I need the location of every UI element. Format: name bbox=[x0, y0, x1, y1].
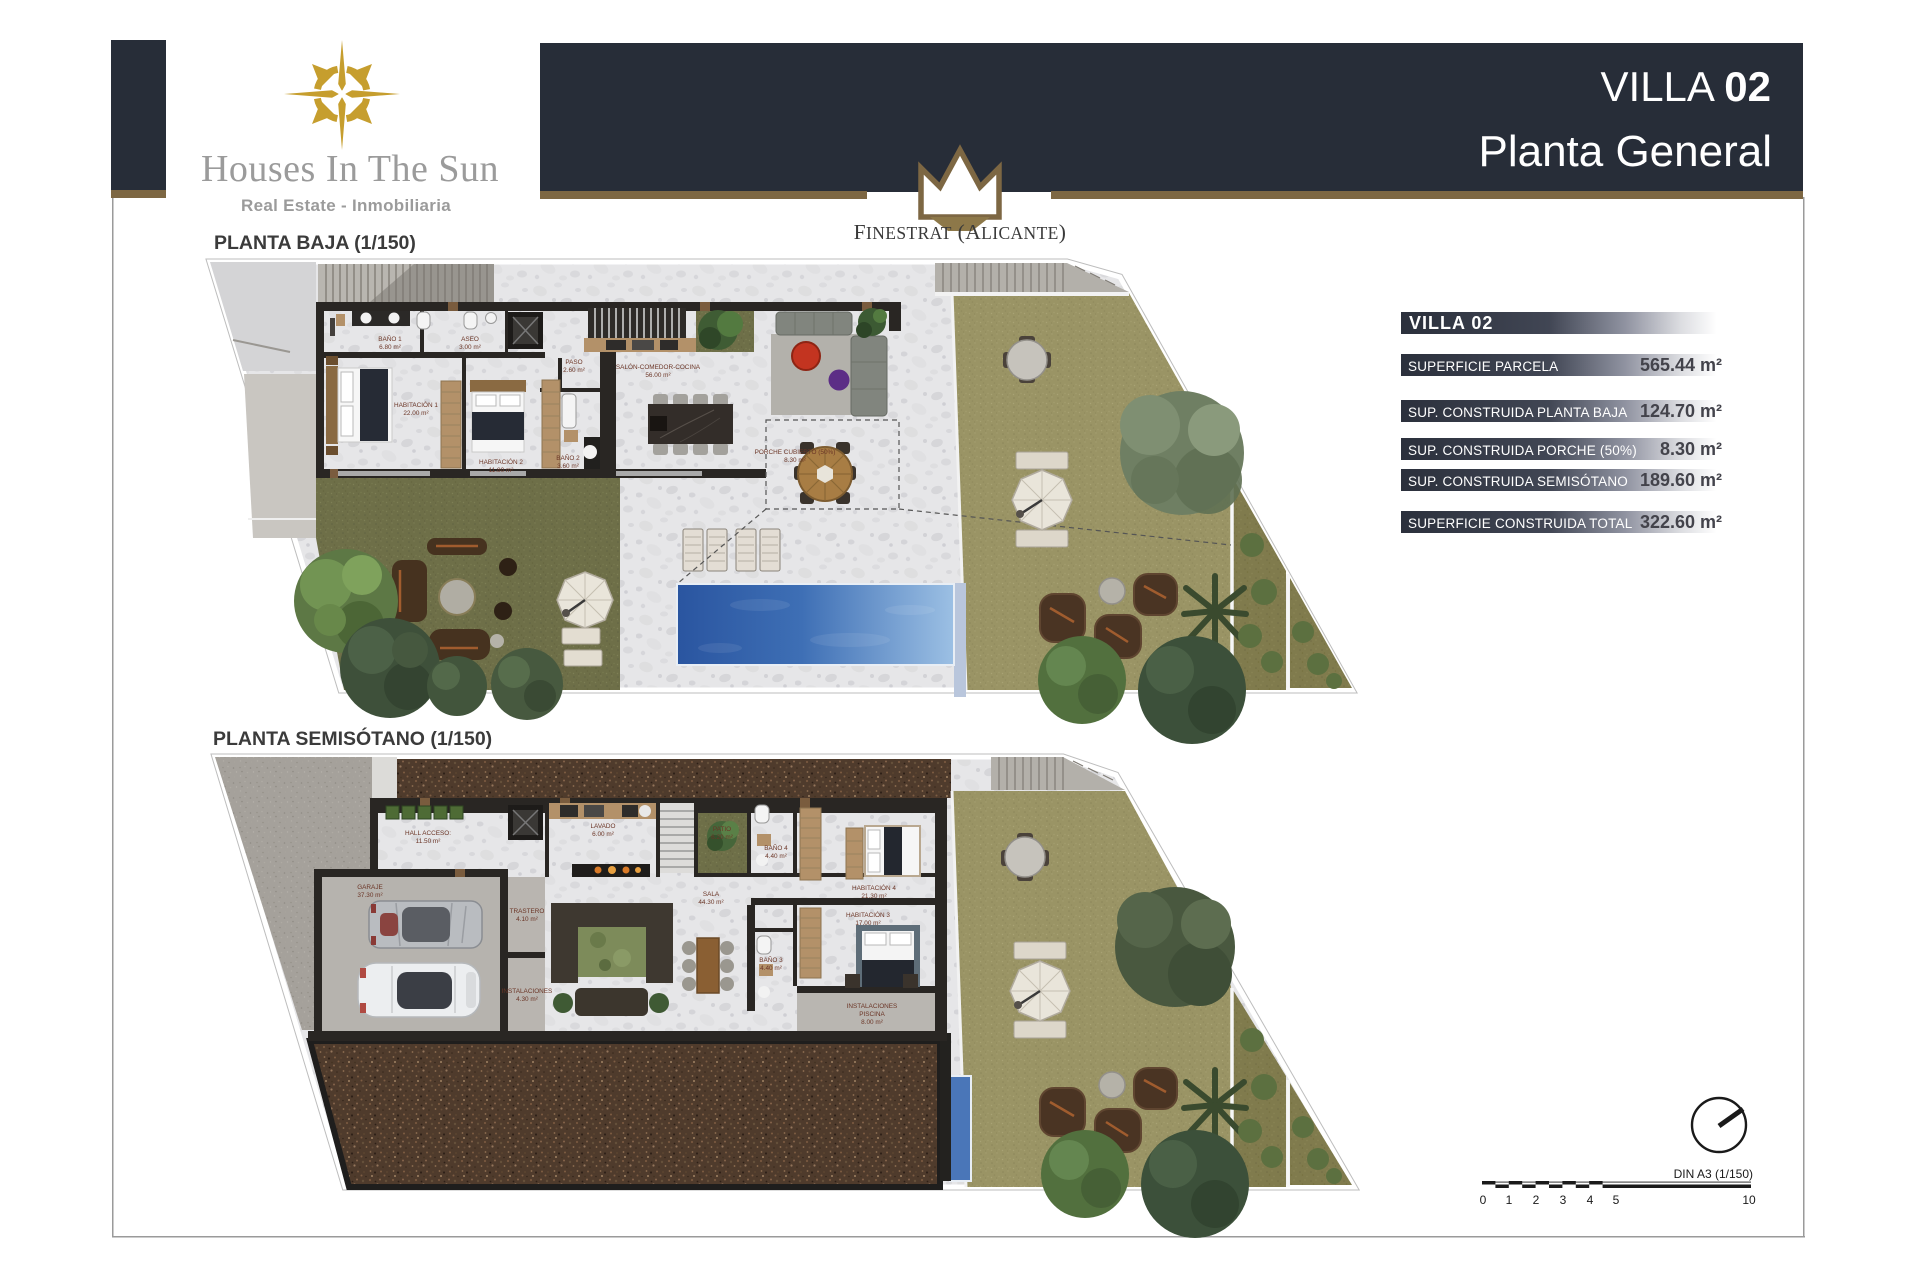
svg-text:322.60 m²: 322.60 m² bbox=[1640, 512, 1722, 532]
svg-text:189.60 m²: 189.60 m² bbox=[1640, 470, 1722, 490]
svg-text:Houses In The Sun: Houses In The Sun bbox=[201, 148, 499, 190]
svg-text:SUP. CONSTRUIDA PLANTA BAJA: SUP. CONSTRUIDA PLANTA BAJA bbox=[1408, 405, 1627, 420]
svg-text:11.50 m²: 11.50 m² bbox=[416, 838, 441, 845]
svg-text:56.00 m²: 56.00 m² bbox=[645, 372, 670, 379]
svg-text:5: 5 bbox=[1613, 1193, 1620, 1207]
svg-text:PLANTA BAJA (1/150): PLANTA BAJA (1/150) bbox=[214, 232, 416, 254]
svg-text:GARAJE: GARAJE bbox=[357, 884, 383, 891]
svg-text:BAÑO 4: BAÑO 4 bbox=[764, 843, 788, 852]
svg-text:LAVADO: LAVADO bbox=[591, 823, 616, 830]
svg-text:INSTALACIONES: INSTALACIONES bbox=[847, 1003, 898, 1010]
svg-text:PISCINA: PISCINA bbox=[859, 1011, 885, 1018]
svg-text:37.30 m²: 37.30 m² bbox=[357, 892, 382, 899]
svg-text:VILLA 02: VILLA 02 bbox=[1409, 313, 1493, 333]
svg-text:HABITACIÓN 4: HABITACIÓN 4 bbox=[852, 883, 896, 892]
svg-text:3: 3 bbox=[1560, 1193, 1567, 1207]
svg-text:8.30 m²: 8.30 m² bbox=[1660, 439, 1722, 459]
svg-text:0: 0 bbox=[1480, 1193, 1487, 1207]
svg-text:BAÑO 3: BAÑO 3 bbox=[759, 955, 783, 964]
svg-text:10: 10 bbox=[1742, 1193, 1756, 1207]
svg-text:4.40 m²: 4.40 m² bbox=[765, 853, 787, 860]
svg-text:4: 4 bbox=[1587, 1193, 1594, 1207]
svg-text:6.00 m²: 6.00 m² bbox=[592, 831, 614, 838]
svg-text:HABITACIÓN 1: HABITACIÓN 1 bbox=[394, 400, 438, 409]
svg-text:HALL ACCESO:: HALL ACCESO: bbox=[405, 830, 451, 837]
svg-text:8.00 m²: 8.00 m² bbox=[861, 1019, 883, 1026]
svg-text:DIN A3 (1/150): DIN A3 (1/150) bbox=[1674, 1167, 1753, 1181]
svg-text:22.00 m²: 22.00 m² bbox=[403, 410, 428, 417]
svg-text:Real Estate - Inmobiliaria: Real Estate - Inmobiliaria bbox=[241, 196, 451, 215]
svg-text:PATIO: PATIO bbox=[713, 826, 731, 833]
svg-text:PASO: PASO bbox=[565, 359, 582, 366]
svg-text:6.80 m²: 6.80 m² bbox=[379, 344, 401, 351]
svg-text:4.30 m²: 4.30 m² bbox=[516, 996, 538, 1003]
svg-text:44.30 m²: 44.30 m² bbox=[698, 899, 723, 906]
svg-text:SUPERFICIE CONSTRUIDA TOTAL: SUPERFICIE CONSTRUIDA TOTAL bbox=[1408, 516, 1633, 531]
svg-text:4.10 m²: 4.10 m² bbox=[516, 916, 538, 923]
svg-text:3.60 m²: 3.60 m² bbox=[557, 463, 579, 470]
svg-text:17.00 m²: 17.00 m² bbox=[855, 920, 880, 927]
svg-text:11.80 m²: 11.80 m² bbox=[489, 467, 514, 474]
svg-text:SALA: SALA bbox=[703, 891, 720, 898]
svg-text:PORCHE CUBIERTO (50%): PORCHE CUBIERTO (50%) bbox=[755, 449, 836, 456]
svg-text:4.40 m²: 4.40 m² bbox=[760, 965, 782, 972]
svg-text:VILLA 02: VILLA 02 bbox=[1601, 63, 1771, 110]
svg-text:6.20 m²: 6.20 m² bbox=[711, 834, 733, 841]
svg-text:SALÓN-COMEDOR-COCINA: SALÓN-COMEDOR-COCINA bbox=[616, 362, 701, 371]
svg-text:SUP. CONSTRUIDA SEMISÓTANO: SUP. CONSTRUIDA SEMISÓTANO bbox=[1408, 474, 1628, 489]
svg-text:INSTALACIONES: INSTALACIONES bbox=[502, 988, 553, 995]
svg-text:124.70 m²: 124.70 m² bbox=[1640, 401, 1722, 421]
svg-text:3.00 m²: 3.00 m² bbox=[459, 344, 481, 351]
svg-text:TRASTERO: TRASTERO bbox=[510, 908, 545, 915]
svg-text:SUP. CONSTRUIDA PORCHE (50%): SUP. CONSTRUIDA PORCHE (50%) bbox=[1408, 443, 1637, 458]
svg-text:BAÑO 2: BAÑO 2 bbox=[556, 453, 580, 462]
svg-text:HABITACIÓN 2: HABITACIÓN 2 bbox=[479, 457, 523, 466]
svg-text:565.44 m²: 565.44 m² bbox=[1640, 355, 1722, 375]
svg-text:FINESTRAT (ALICANTE): FINESTRAT (ALICANTE) bbox=[854, 220, 1067, 244]
svg-text:2: 2 bbox=[1533, 1193, 1540, 1207]
svg-text:SUPERFICIE PARCELA: SUPERFICIE PARCELA bbox=[1408, 359, 1558, 374]
svg-text:Planta General: Planta General bbox=[1478, 127, 1772, 176]
svg-text:ASEO: ASEO bbox=[461, 336, 479, 343]
svg-text:21.30 m²: 21.30 m² bbox=[861, 893, 886, 900]
svg-text:BAÑO 1: BAÑO 1 bbox=[378, 334, 402, 343]
svg-text:1: 1 bbox=[1506, 1193, 1513, 1207]
svg-text:PLANTA SEMISÓTANO (1/150): PLANTA SEMISÓTANO (1/150) bbox=[213, 726, 492, 750]
svg-text:8.30 m²: 8.30 m² bbox=[784, 457, 806, 464]
svg-text:HABITACIÓN 3: HABITACIÓN 3 bbox=[846, 910, 890, 919]
svg-text:2.60 m²: 2.60 m² bbox=[563, 367, 585, 374]
